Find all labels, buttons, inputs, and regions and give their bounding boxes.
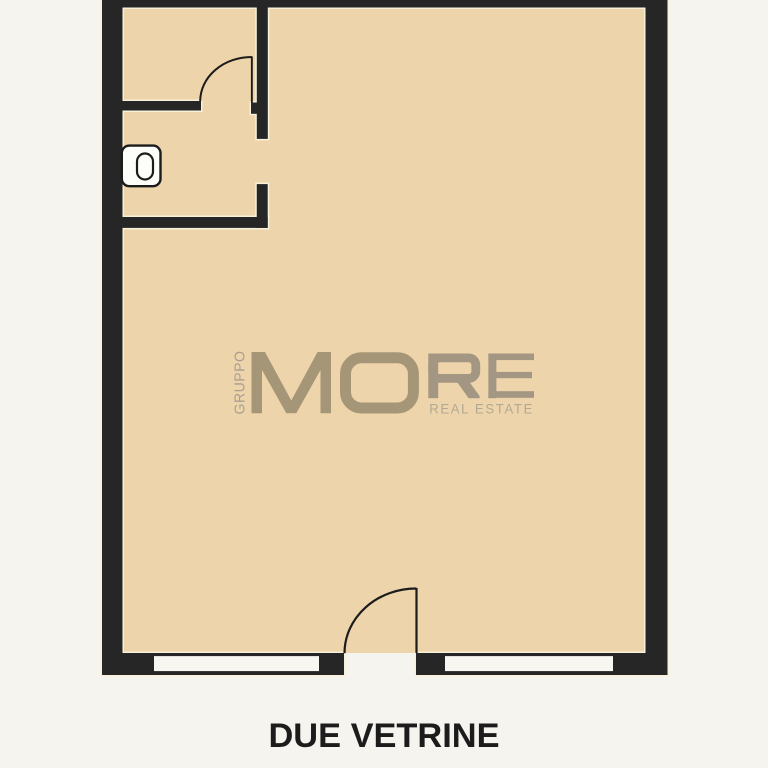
svg-text:REAL ESTATE: REAL ESTATE bbox=[429, 400, 534, 416]
svg-text:GRUPPO: GRUPPO bbox=[232, 351, 249, 415]
svg-text:DUE VETRINE: DUE VETRINE bbox=[269, 717, 500, 755]
